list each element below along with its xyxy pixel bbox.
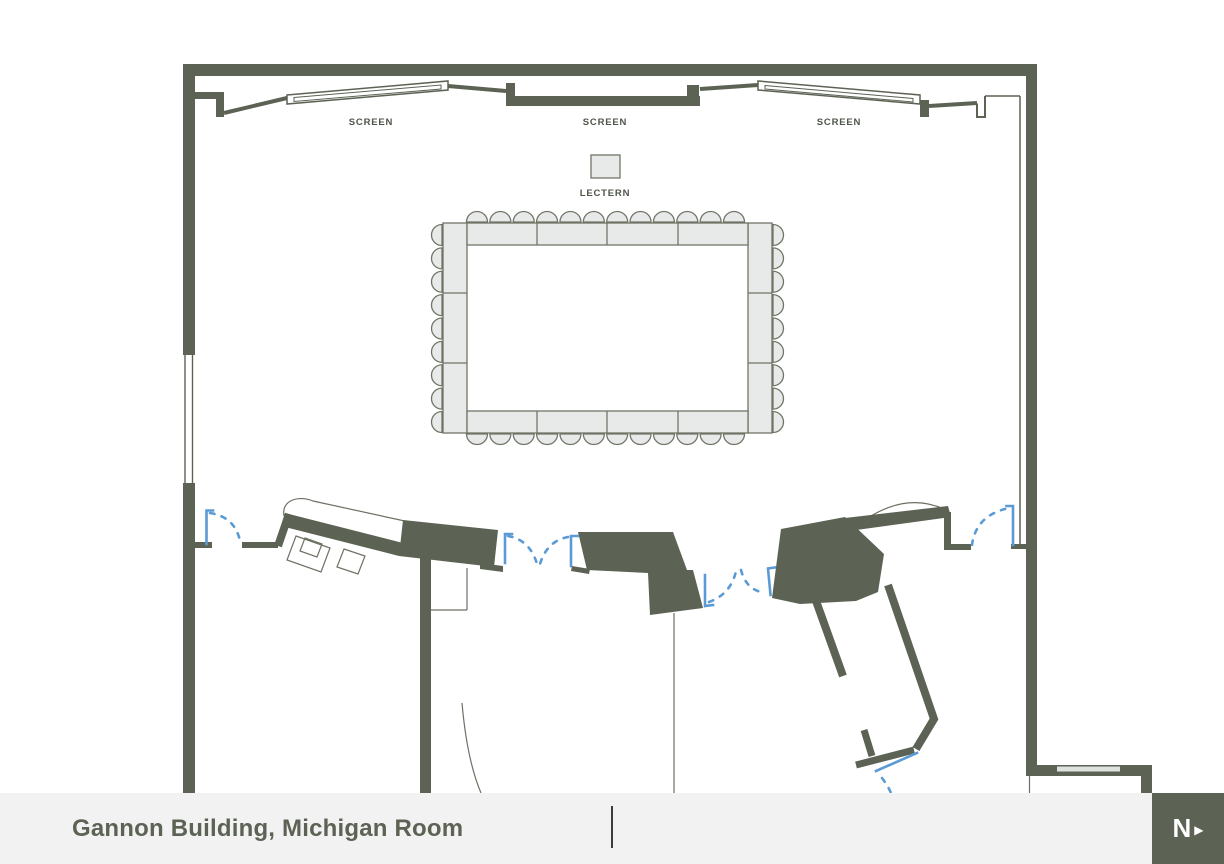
right-wall — [1026, 64, 1037, 765]
chair — [724, 434, 745, 445]
right-wall-door — [972, 506, 1013, 545]
door-jamb — [207, 511, 214, 545]
wall-ledge-left — [195, 92, 224, 99]
door-jamb — [1007, 506, 1014, 545]
closet-outline — [431, 568, 467, 610]
screen-label-left: SCREEN — [349, 117, 393, 128]
chair — [490, 434, 511, 445]
inner-right-wall — [977, 96, 1026, 549]
angled-corridor — [811, 585, 934, 793]
angled-wall-band — [281, 513, 403, 556]
footer-divider — [611, 806, 613, 848]
chair — [560, 212, 581, 223]
angled-wall-block — [399, 520, 498, 567]
door-swing-arc — [508, 536, 537, 564]
footer-bar: Gannon Building, Michigan Room N ▶ — [0, 793, 1224, 864]
chair — [432, 388, 443, 409]
chair — [773, 388, 784, 409]
center-angled-wall — [571, 532, 703, 793]
chair — [607, 212, 628, 223]
top-wall — [183, 64, 1037, 76]
north-letter: N — [1172, 813, 1191, 844]
chair — [724, 212, 745, 223]
chair — [467, 212, 488, 223]
chair — [773, 341, 784, 362]
chair — [432, 412, 443, 433]
floor-plan-canvas: SCREEN SCREEN SCREEN LECTERN — [0, 0, 1224, 864]
chair — [773, 318, 783, 339]
chair — [432, 225, 443, 246]
double-door-2 — [705, 568, 775, 607]
chair — [432, 271, 443, 292]
screen-right — [758, 81, 920, 104]
wall-jog-left — [216, 99, 224, 117]
left-wall-door — [195, 511, 289, 549]
door-swing-arc — [709, 571, 736, 602]
chair — [432, 341, 443, 362]
screen-center — [506, 96, 700, 106]
large-door-swing — [462, 703, 481, 793]
door-swing-arc — [210, 513, 240, 541]
chair — [432, 248, 443, 269]
wall-stub — [506, 83, 515, 97]
page-title: Gannon Building, Michigan Room — [72, 793, 463, 864]
door-swing-arc — [540, 537, 568, 564]
door-swing-arc — [882, 778, 891, 793]
door-swing-arc — [972, 508, 1009, 545]
screen-left — [287, 81, 448, 104]
chair — [630, 212, 651, 223]
double-door-1 — [505, 534, 578, 566]
chair — [653, 434, 674, 444]
chair — [583, 212, 604, 223]
screen-wall-assemblies — [195, 81, 977, 117]
north-indicator-button[interactable]: N ▶ — [1152, 793, 1224, 864]
chair — [560, 434, 581, 445]
chair — [537, 434, 558, 445]
chair — [773, 271, 784, 292]
left-counter-assembly — [281, 499, 503, 793]
left-wall-lower — [183, 483, 195, 793]
chair — [467, 434, 488, 445]
floor-plan-page: SCREEN SCREEN SCREEN LECTERN — [0, 0, 1224, 864]
left-window — [185, 355, 193, 483]
chair — [700, 434, 721, 445]
door-jamb — [505, 534, 512, 563]
lectern — [591, 155, 620, 178]
chair — [432, 365, 443, 386]
bottom-right-wall-vertical — [1141, 776, 1152, 793]
screen-label-center: SCREEN — [583, 117, 627, 128]
chair — [537, 212, 558, 223]
angled-wall-block — [772, 517, 884, 604]
chair — [773, 412, 784, 433]
wall-jog-right — [920, 100, 929, 117]
chair — [700, 212, 721, 223]
chair — [773, 248, 784, 269]
chair — [607, 434, 628, 445]
chair — [513, 212, 534, 223]
angled-wall-band — [845, 506, 951, 531]
chair — [773, 365, 784, 386]
north-arrow-icon: ▶ — [1194, 823, 1203, 837]
door-swing-arc — [741, 570, 765, 593]
chair — [677, 212, 698, 223]
chair — [630, 434, 651, 445]
chair — [653, 212, 674, 222]
lectern-label: LECTERN — [580, 188, 630, 199]
chair — [583, 434, 604, 445]
conference-table — [443, 223, 772, 433]
chair — [513, 434, 534, 445]
chair — [773, 295, 784, 316]
chair — [773, 225, 784, 246]
wall-stub — [687, 85, 699, 97]
chair — [432, 318, 442, 339]
left-wall-upper — [183, 64, 195, 355]
screen-label-right: SCREEN — [817, 117, 861, 128]
chair — [432, 295, 443, 316]
interior-wall-vertical — [420, 558, 431, 793]
chair — [677, 434, 698, 445]
door-jamb — [571, 536, 578, 566]
conference-chairs — [432, 212, 784, 445]
pocket-door-slab — [1057, 767, 1120, 772]
chair — [490, 212, 511, 223]
right-counter-assembly — [772, 503, 971, 604]
